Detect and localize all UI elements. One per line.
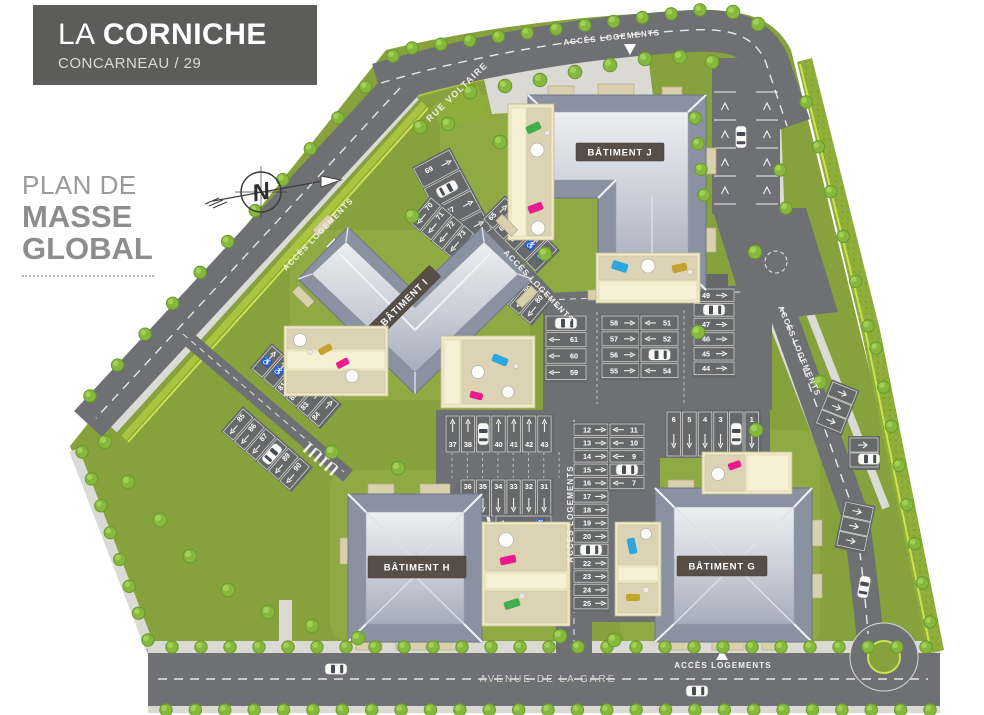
tree-icon: [747, 704, 759, 715]
tree-icon: [222, 235, 234, 247]
parking-number: 22: [583, 559, 591, 568]
tree-icon: [332, 112, 344, 124]
divider: [22, 275, 154, 277]
tree-icon: [166, 297, 178, 309]
tree-icon: [427, 641, 439, 653]
car-icon: [649, 349, 671, 360]
tree-icon: [248, 704, 260, 715]
parking-number: 25: [583, 599, 591, 608]
tree-icon: [195, 641, 207, 653]
tree-icon: [870, 342, 882, 354]
street-label-acces: ACCÈS LOGEMENTS: [566, 465, 575, 562]
parking-number: 24: [583, 585, 592, 594]
tree-icon: [751, 17, 765, 31]
tree-icon: [498, 79, 512, 93]
tree-icon: [277, 704, 289, 715]
tree-icon: [387, 50, 399, 62]
terrace: [596, 253, 700, 303]
tree-icon: [601, 704, 613, 715]
tree-icon: [849, 275, 861, 287]
site-plan-page: 696766 656463♿♿ 70717273747577787980 ♿♿8…: [0, 0, 984, 715]
parking-number: 1: [750, 415, 754, 424]
tree-icon: [717, 641, 729, 653]
parking-number: 3: [719, 415, 723, 424]
tree-icon: [104, 526, 116, 538]
tree-icon: [579, 19, 591, 31]
tree-icon: [253, 641, 265, 653]
tree-icon: [123, 580, 135, 592]
tree-icon: [550, 23, 562, 35]
parking-number: 10: [630, 439, 638, 448]
tree-icon: [219, 704, 231, 715]
parking-number: 36: [464, 482, 472, 491]
building-label: BÂTIMENT H: [384, 562, 451, 574]
tree-icon: [775, 641, 787, 653]
parking-number: 38: [464, 440, 472, 449]
tree-icon: [691, 325, 705, 339]
tree-icon: [413, 120, 427, 134]
tree-icon: [705, 55, 719, 69]
tree-icon: [836, 704, 848, 715]
parking-number: 57: [610, 334, 618, 343]
car-icon: [616, 464, 638, 475]
parking-row: 58575655: [600, 314, 640, 381]
parking-row: 12131415161718192022232425: [572, 422, 609, 612]
car-icon: [858, 454, 880, 465]
tree-icon: [659, 704, 671, 715]
street-label-avenue: AVENUE DE LA GARE: [480, 674, 617, 685]
tree-icon: [183, 549, 197, 563]
parking-number: 49: [702, 291, 710, 300]
tree-icon: [553, 629, 567, 643]
tree-icon: [833, 641, 845, 653]
page-title: LA CORNICHE: [58, 18, 317, 52]
tree-icon: [114, 553, 126, 565]
parking-number: 37: [449, 440, 457, 449]
tree-icon: [630, 704, 642, 715]
parking-number: 5: [687, 415, 691, 424]
parking-number: 60: [570, 352, 578, 361]
tree-icon: [514, 641, 526, 653]
tree-icon: [908, 538, 920, 550]
tree-icon: [636, 11, 648, 23]
parking-row: 65431: [665, 410, 762, 457]
parking-number: 31: [540, 482, 548, 491]
tree-icon: [132, 607, 144, 619]
tree-icon: [454, 704, 466, 715]
parking-number: 42: [525, 440, 533, 449]
parking-number: 54: [663, 366, 672, 375]
parking-number: 32: [525, 482, 533, 491]
tree-icon: [365, 704, 377, 715]
tree-icon: [865, 704, 877, 715]
tree-icon: [340, 641, 352, 653]
parking-number: 40: [494, 440, 502, 449]
tree-icon: [673, 50, 687, 64]
parking-number: 34: [494, 482, 503, 491]
tree-icon: [463, 34, 475, 46]
parking-number: 18: [583, 505, 591, 514]
tree-icon: [305, 619, 319, 633]
parking-number: 35: [479, 482, 487, 491]
parking-number: 19: [583, 519, 591, 528]
tree-icon: [406, 42, 418, 54]
parking-number: 55: [610, 366, 618, 375]
tree-icon: [688, 641, 700, 653]
tree-icon: [901, 498, 913, 510]
parking-number: 7: [632, 479, 636, 488]
tree-icon: [95, 500, 107, 512]
tree-icon: [336, 704, 348, 715]
tree-icon: [369, 641, 381, 653]
tree-icon: [689, 704, 701, 715]
tree-icon: [920, 641, 932, 653]
parking-number: 6: [672, 415, 676, 424]
tree-icon: [311, 641, 323, 653]
tree-icon: [307, 704, 319, 715]
tree-icon: [194, 266, 206, 278]
tree-icon: [777, 704, 789, 715]
roadside-parking: [848, 436, 880, 470]
parking-row: 373840414243: [444, 414, 554, 453]
tree-icon: [521, 27, 533, 39]
terrace: [284, 326, 388, 396]
tree-icon: [85, 473, 97, 485]
car-icon: [703, 304, 725, 315]
street-label-acces: ACCÈS LOGEMENTS: [674, 661, 771, 670]
parking-number: 56: [610, 350, 618, 359]
tree-icon: [435, 38, 447, 50]
parking-number: 58: [610, 319, 618, 328]
parking-number: 44: [702, 364, 711, 373]
tree-icon: [689, 112, 701, 124]
tree-icon: [98, 435, 112, 449]
tree-icon: [391, 461, 405, 475]
tree-icon: [726, 5, 740, 19]
terrace: [482, 522, 570, 626]
tree-icon: [221, 583, 235, 597]
tree-icon: [694, 4, 706, 16]
parking-number: 23: [583, 572, 591, 581]
tree-icon: [692, 137, 704, 149]
parking-number: 14: [583, 452, 592, 461]
title-card: LA CORNICHE CONCARNEAU / 29: [33, 5, 317, 85]
tree-icon: [139, 328, 151, 340]
parking-number: 51: [663, 319, 671, 328]
tree-icon: [638, 52, 652, 66]
tree-icon: [774, 164, 786, 176]
tree-icon: [749, 423, 763, 437]
tree-icon: [572, 641, 584, 653]
tree-icon: [885, 420, 897, 432]
tree-icon: [351, 631, 365, 645]
tree-icon: [862, 320, 874, 332]
parking-row: 111097: [608, 422, 645, 492]
tree-icon: [718, 704, 730, 715]
tree-icon: [543, 641, 555, 653]
parking-number: 52: [663, 334, 671, 343]
tree-icon: [800, 96, 812, 108]
terrace: [508, 104, 554, 240]
tree-icon: [607, 633, 621, 647]
tree-icon: [456, 641, 468, 653]
tree-icon: [153, 513, 167, 527]
tree-icon: [916, 577, 928, 589]
car-icon: [580, 544, 602, 555]
car-icon: [736, 126, 747, 148]
tree-icon: [891, 641, 903, 653]
tree-icon: [542, 704, 554, 715]
tree-icon: [111, 359, 123, 371]
tree-icon: [359, 81, 371, 93]
parking-number: 17: [583, 492, 591, 501]
tree-icon: [485, 641, 497, 653]
car-icon: [686, 686, 708, 697]
page-subtitle: CONCARNEAU / 29: [58, 55, 317, 72]
tree-icon: [512, 704, 524, 715]
tree-icon: [607, 15, 619, 27]
tree-icon: [924, 616, 936, 628]
tree-icon: [76, 446, 88, 458]
building-label: BÂTIMENT G: [688, 561, 755, 573]
tree-icon: [166, 641, 178, 653]
tree-icon: [837, 230, 849, 242]
tree-icon: [325, 445, 339, 459]
tree-icon: [84, 390, 96, 402]
parking-number: 16: [583, 479, 591, 488]
tree-icon: [424, 704, 436, 715]
parking-number: 20: [583, 532, 591, 541]
compass-north-label: N: [250, 177, 273, 207]
tree-icon: [804, 641, 816, 653]
parking-number: 9: [632, 452, 636, 461]
tree-icon: [261, 605, 275, 619]
parking-number: 43: [540, 440, 548, 449]
tree-icon: [698, 189, 710, 201]
tree-icon: [603, 58, 617, 72]
terrace: [702, 452, 792, 494]
tree-icon: [142, 634, 154, 646]
car-icon: [731, 423, 742, 445]
parking-number: 13: [583, 439, 591, 448]
car-icon: [478, 423, 489, 445]
tree-icon: [878, 381, 890, 393]
site-plan: 696766 656463♿♿ 70717273747577787980 ♿♿8…: [0, 0, 984, 715]
tree-icon: [224, 641, 236, 653]
parking-number: 45: [702, 349, 710, 358]
plan-title: PLAN DE MASSE GLOBAL: [22, 170, 192, 277]
parking-number: 12: [583, 425, 591, 434]
parking-number: 11: [630, 425, 638, 434]
tree-icon: [806, 704, 818, 715]
tree-icon: [405, 209, 419, 223]
tree-icon: [748, 245, 762, 259]
building-label: BÂTIMENT J: [588, 147, 653, 159]
tree-icon: [189, 704, 201, 715]
car-icon: [325, 664, 347, 675]
tree-icon: [746, 641, 758, 653]
tree-icon: [398, 641, 410, 653]
tree-icon: [533, 73, 547, 87]
tree-icon: [538, 247, 552, 261]
tree-icon: [121, 475, 135, 489]
parking-number: 59: [570, 368, 578, 377]
tree-icon: [659, 641, 671, 653]
tree-icon: [571, 704, 583, 715]
parking-row: 515254: [639, 314, 679, 381]
parking-number: 41: [510, 440, 518, 449]
tree-icon: [277, 173, 289, 185]
tree-icon: [924, 704, 936, 715]
tree-icon: [160, 704, 172, 715]
tree-icon: [665, 8, 677, 20]
parking-number: 33: [509, 482, 517, 491]
parking-number: 61: [570, 335, 578, 344]
tree-icon: [492, 30, 504, 42]
tree-icon: [780, 202, 792, 214]
tree-icon: [568, 65, 582, 79]
parking-row: 616059: [544, 314, 587, 383]
tree-icon: [395, 704, 407, 715]
tree-icon: [695, 163, 707, 175]
tree-icon: [862, 641, 874, 653]
tree-icon: [282, 641, 294, 653]
tree-icon: [493, 135, 507, 149]
tree-icon: [894, 704, 906, 715]
tree-icon: [483, 704, 495, 715]
parking-number: 15: [583, 465, 591, 474]
tree-icon: [441, 117, 455, 131]
tree-icon: [630, 641, 642, 653]
tree-icon: [812, 141, 824, 153]
terrace: [441, 336, 535, 408]
tree-icon: [825, 185, 837, 197]
tree-icon: [893, 459, 905, 471]
terrace: [615, 522, 661, 616]
tree-icon: [304, 143, 316, 155]
